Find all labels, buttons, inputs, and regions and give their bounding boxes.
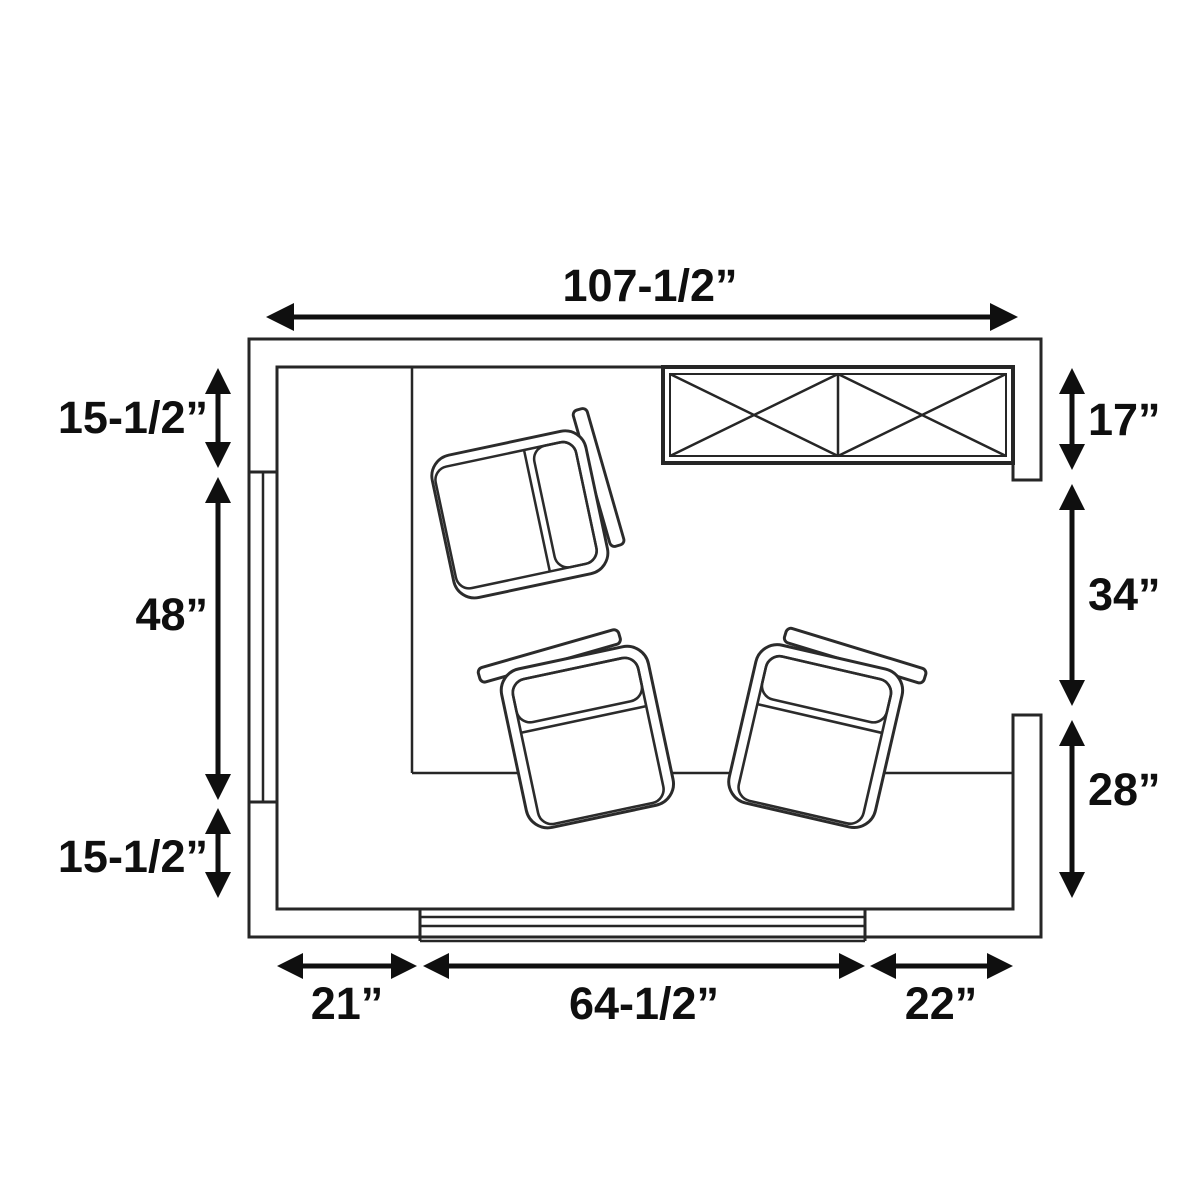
- dim-left-top-label: 15-1/2”: [58, 392, 208, 443]
- dim-bottom-middle: 64-1/2”: [423, 953, 865, 1029]
- room-walls: [249, 339, 1041, 937]
- dim-right-bottom: 28”: [1059, 720, 1161, 898]
- arrowhead-up: [205, 368, 231, 394]
- wall-outline: [249, 339, 1041, 937]
- arrowhead-left: [277, 953, 303, 979]
- arrowhead-left: [423, 953, 449, 979]
- dim-left-middle-label: 48”: [135, 589, 208, 640]
- floor-plan-page: 107-1/2” 15-1/2” 48” 15-1/2”: [0, 0, 1200, 1200]
- floor-plan-canvas: 107-1/2” 15-1/2” 48” 15-1/2”: [0, 0, 1200, 1200]
- arrowhead-right: [987, 953, 1013, 979]
- dim-bottom-left: 21”: [277, 953, 417, 1029]
- arrowhead-right: [839, 953, 865, 979]
- armchair-2: [475, 624, 678, 836]
- arrowhead-left: [266, 303, 294, 331]
- arrowhead-up: [205, 477, 231, 503]
- arrowhead-left: [870, 953, 896, 979]
- dim-right-top: 17”: [1059, 368, 1161, 470]
- arrowhead-down: [1059, 872, 1085, 898]
- dim-top-width-label: 107-1/2”: [562, 260, 737, 311]
- dim-right-middle: 34”: [1059, 484, 1161, 706]
- arrowhead-up: [1059, 368, 1085, 394]
- crossed-cabinet: [663, 367, 1013, 463]
- dim-top-width: 107-1/2”: [266, 260, 1018, 331]
- arrowhead-down: [1059, 680, 1085, 706]
- arrowhead-down: [205, 872, 231, 898]
- dim-bottom-right: 22”: [870, 953, 1013, 1029]
- dim-right-top-label: 17”: [1088, 394, 1161, 445]
- arrowhead-up: [1059, 720, 1085, 746]
- arrowhead-down: [1059, 444, 1085, 470]
- dim-left-bottom-label: 15-1/2”: [58, 831, 208, 882]
- cabinet-right-x: [838, 374, 1006, 456]
- arrowhead-up: [205, 808, 231, 834]
- dim-bottom-right-label: 22”: [905, 978, 978, 1029]
- dim-bottom-middle-label: 64-1/2”: [569, 978, 719, 1029]
- armchair-3-shell: [724, 640, 907, 832]
- dim-right-middle-label: 34”: [1088, 569, 1161, 620]
- dim-bottom-left-label: 21”: [311, 978, 384, 1029]
- dim-left-middle: 48”: [135, 477, 231, 800]
- armchair-1: [424, 405, 630, 602]
- dim-right-bottom-label: 28”: [1088, 764, 1161, 815]
- dim-left-bottom: 15-1/2”: [58, 808, 231, 898]
- arrowhead-up: [1059, 484, 1085, 510]
- arrowhead-right: [391, 953, 417, 979]
- arrowhead-right: [990, 303, 1018, 331]
- cabinet-left-x: [670, 374, 838, 456]
- arrowhead-down: [205, 774, 231, 800]
- dim-left-top: 15-1/2”: [58, 368, 231, 468]
- arrowhead-down: [205, 442, 231, 468]
- armchair-3: [724, 622, 929, 836]
